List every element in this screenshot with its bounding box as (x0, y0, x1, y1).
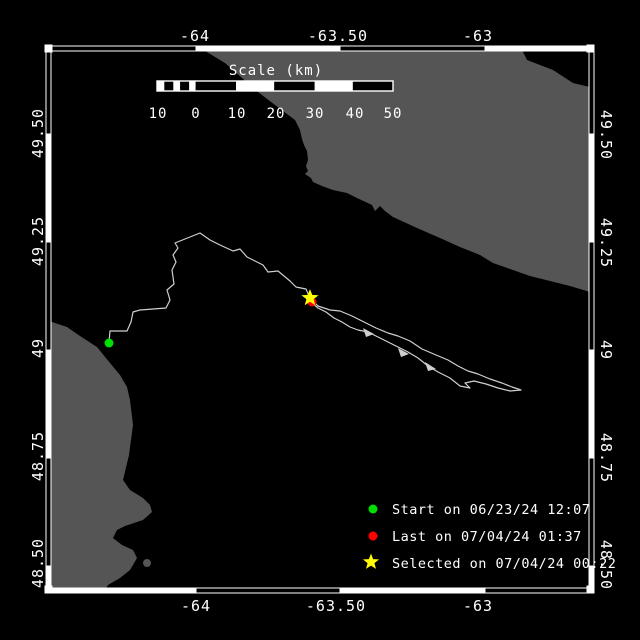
axis-labels-left: 49.50 49.25 49 48.75 48.50 (29, 108, 47, 588)
tick-label-right-2: 49 (597, 340, 615, 360)
track-east-segment[interactable] (310, 298, 521, 391)
scale-tick-2: 10 (228, 106, 247, 122)
tick-label-right-3: 48.75 (597, 433, 615, 483)
tick-label-left-2: 49 (29, 338, 47, 358)
start-marker[interactable] (105, 339, 114, 348)
tick-label-left-3: 48.75 (29, 431, 47, 481)
scale-tick-1: 0 (191, 106, 200, 122)
tick-label-left-0: 49.50 (29, 108, 47, 158)
tick-label-bottom-2: -63 (463, 597, 493, 615)
map-window: -64 -63.50 -63 -64 -63.50 -63 49.50 49.2… (0, 0, 640, 640)
small-island (143, 559, 151, 567)
scale-tick-4: 30 (306, 106, 325, 122)
tick-label-top-2: -63 (463, 27, 493, 45)
track-west-segment[interactable] (109, 233, 310, 342)
scale-bar-tick-labels: 10 0 10 20 30 40 50 (149, 106, 403, 122)
tick-label-right-1: 49.25 (597, 218, 615, 268)
map-canvas: -64 -63.50 -63 -64 -63.50 -63 49.50 49.2… (0, 0, 640, 640)
tick-label-top-0: -64 (180, 27, 210, 45)
axis-labels-top: -64 -63.50 -63 (180, 27, 493, 45)
legend-start-icon (369, 505, 378, 514)
scale-tick-0: 10 (149, 106, 168, 122)
drifter-track[interactable] (109, 233, 521, 391)
axis-labels-right: 49.50 49.25 49 48.75 48.50 (597, 110, 615, 590)
tick-label-bottom-1: -63.50 (306, 597, 366, 615)
scale-tick-5: 40 (346, 106, 365, 122)
tick-label-top-1: -63.50 (308, 27, 368, 45)
scale-tick-3: 20 (267, 106, 286, 122)
legend-selected-label: Selected on 07/04/24 00:22 (392, 556, 616, 572)
scale-tick-6: 50 (384, 106, 403, 122)
tick-label-right-0: 49.50 (597, 110, 615, 160)
track-arrow-mark (363, 328, 374, 337)
axis-labels-bottom: -64 -63.50 -63 (181, 597, 493, 615)
tick-label-bottom-0: -64 (181, 597, 211, 615)
tick-label-left-4: 48.50 (29, 538, 47, 588)
legend: Start on 06/23/24 12:07 Last on 07/04/24… (363, 502, 616, 572)
landmass-southwest (46, 318, 152, 593)
legend-selected-star-icon (363, 553, 379, 568)
tick-label-left-1: 49.25 (29, 216, 47, 266)
legend-last-label: Last on 07/04/24 01:37 (392, 529, 582, 545)
legend-last-icon (369, 532, 378, 541)
legend-start-label: Start on 06/23/24 12:07 (392, 502, 590, 518)
scale-bar-title: Scale (km) (229, 63, 323, 79)
